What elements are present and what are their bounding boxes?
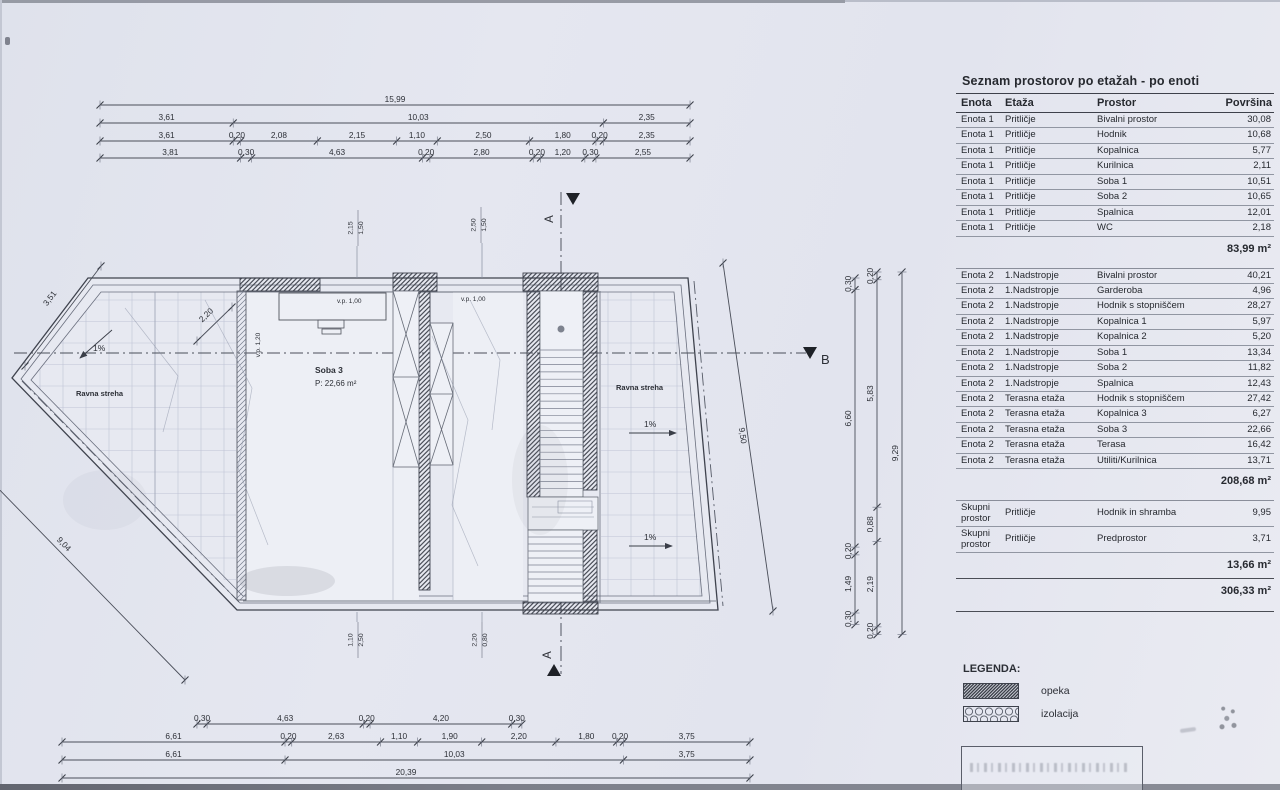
svg-text:2,20: 2,20 [511,731,528,741]
table-row: Enota 1PritličjeBivalni prostor30,08 [956,113,1274,128]
cell-area: 22,66 [1214,423,1274,437]
cell: Pritličje [1000,221,1092,235]
section-subtotal: 13,66 m² [956,553,1274,571]
svg-text:9,29: 9,29 [890,445,900,462]
svg-text:6,60: 6,60 [843,410,853,427]
svg-text:2,35: 2,35 [639,112,656,122]
table-row: Enota 2Terasna etažaTerasa16,42 [956,438,1274,453]
svg-text:0,20: 0,20 [865,267,875,284]
cell: Terasna etaža [1000,392,1092,406]
table-row: Enota 21.NadstropjeKopalnica 15,97 [956,315,1274,330]
cell: Enota 2 [956,392,1000,406]
cell: 1.Nadstropje [1000,284,1092,298]
svg-text:9,04: 9,04 [55,535,74,554]
vp120-label: v.p. 1,20 [255,332,262,357]
cell: Enota 1 [956,190,1000,204]
vp100-right-label: v.p. 1,00 [461,296,486,303]
cell: Utiliti/Kurilnica [1092,454,1214,468]
cell-area: 5,20 [1214,330,1274,344]
slope-right2-label: 1% [644,532,657,542]
svg-text:2,50: 2,50 [358,633,365,646]
cell: Pritličje [1000,206,1092,220]
cell: Kopalnica [1092,144,1214,158]
cell: Kopalnica 1 [1092,315,1214,329]
svg-text:3,51: 3,51 [41,288,59,307]
svg-text:4,20: 4,20 [433,713,450,723]
cell-area: 13,34 [1214,346,1274,360]
section-subtotal: 83,99 m² [956,237,1274,255]
svg-text:20,39: 20,39 [396,767,417,777]
cell: Pritličje [1000,532,1092,546]
cell-area: 12,43 [1214,377,1274,391]
cell: Pritličje [1000,113,1092,127]
total-divider-bottom [956,611,1274,612]
svg-text:2,63: 2,63 [328,731,345,741]
cell-area: 3,71 [1214,532,1274,546]
svg-text:0,30: 0,30 [509,713,526,723]
cell: Enota 2 [956,407,1000,421]
vp100-left-label: v.p. 1,00 [337,298,362,305]
cell-area: 10,68 [1214,128,1274,142]
cell-area: 2,18 [1214,221,1274,235]
cell-area: 2,11 [1214,159,1274,173]
svg-text:1,90: 1,90 [442,731,459,741]
cell: Skupni prostor [956,501,1000,526]
table-row: Enota 21.NadstropjeKopalnica 25,20 [956,330,1274,345]
cell: Soba 2 [1092,190,1214,204]
cell: 1.Nadstropje [1000,299,1092,313]
cell: Enota 2 [956,315,1000,329]
cell: Enota 1 [956,128,1000,142]
svg-text:15,99: 15,99 [385,94,406,104]
faint-handwriting [970,763,1128,772]
svg-text:0,80: 0,80 [482,633,489,646]
svg-text:0,30: 0,30 [582,147,599,157]
svg-text:2,80: 2,80 [473,147,490,157]
cell: Terasa [1092,438,1214,452]
cell: Hodnik in shramba [1092,506,1214,520]
cell: Skupni prostor [956,527,1000,552]
table-row: Enota 21.NadstropjeBivalni prostor40,21 [956,269,1274,284]
cell: Spalnica [1092,377,1214,391]
cell: Pritličje [1000,159,1092,173]
cell: Enota 2 [956,284,1000,298]
section-a-bottom-label: A [542,651,554,659]
cell: Kurilnica [1092,159,1214,173]
table-row: Enota 21.NadstropjeHodnik s stopniščem28… [956,299,1274,314]
table-row: Enota 2Terasna etažaHodnik s stopniščem2… [956,392,1274,407]
svg-text:2,50: 2,50 [475,130,492,140]
table-row: Enota 1PritličjeSoba 210,65 [956,190,1274,205]
svg-text:1,80: 1,80 [555,130,572,140]
cell: 1.Nadstropje [1000,361,1092,375]
cell: Soba 3 [1092,423,1214,437]
svg-text:0,20: 0,20 [612,731,629,741]
section-subtotal: 208,68 m² [956,469,1274,487]
cell: Enota 2 [956,377,1000,391]
svg-text:0,30: 0,30 [843,610,853,627]
svg-text:3,75: 3,75 [679,749,696,759]
col-enota: Enota [956,97,1000,109]
table-row: Skupni prostorPritličjeHodnik in shramba… [956,501,1274,527]
svg-text:1,49: 1,49 [843,575,853,592]
cell: Enota 2 [956,423,1000,437]
cell-area: 5,77 [1214,144,1274,158]
svg-text:2,15: 2,15 [349,130,366,140]
svg-text:1,50: 1,50 [358,221,365,234]
table-row: Enota 2Terasna etažaSoba 322,66 [956,423,1274,438]
table-row: Enota 21.NadstropjeSoba 113,34 [956,346,1274,361]
cell-area: 10,65 [1214,190,1274,204]
svg-text:0,30: 0,30 [238,147,255,157]
section-a-top-label: A [544,215,556,223]
col-prostor: Prostor [1092,97,1214,109]
cell: Enota 1 [956,175,1000,189]
cell: Terasna etaža [1000,407,1092,421]
room-name-label: Soba 3 [315,365,343,375]
cell: Hodnik s stopniščem [1092,392,1214,406]
flat-roof-left-label: Ravna streha [76,389,124,398]
svg-text:1,20: 1,20 [555,147,572,157]
cell: Enota 1 [956,221,1000,235]
svg-text:1,50: 1,50 [481,218,488,231]
svg-text:0,20: 0,20 [359,713,376,723]
table-row: Enota 1PritličjeSoba 110,51 [956,175,1274,190]
brick-hatch-swatch-icon [963,683,1019,699]
cell: Enota 1 [956,159,1000,173]
svg-text:2,19: 2,19 [865,576,875,593]
table-row: Enota 2Terasna etažaKopalnica 36,27 [956,407,1274,422]
cell: Pritličje [1000,175,1092,189]
cell: Spalnica [1092,206,1214,220]
legend-row-opeka: opeka [963,683,1193,699]
svg-text:0,20: 0,20 [418,147,435,157]
table-row: Enota 1PritličjeSpalnica12,01 [956,206,1274,221]
svg-text:10,03: 10,03 [444,749,465,759]
cell-area: 12,01 [1214,206,1274,220]
table-row: Enota 21.NadstropjeSoba 211,82 [956,361,1274,376]
legend-label-izolacija: izolacija [1041,708,1078,720]
svg-text:1,10: 1,10 [409,130,426,140]
svg-text:1,10: 1,10 [348,633,355,646]
svg-text:2,35: 2,35 [639,130,656,140]
col-povrsina: Površina [1214,97,1274,109]
svg-text:0,20: 0,20 [843,543,853,560]
cell: Enota 2 [956,330,1000,344]
cell: 1.Nadstropje [1000,346,1092,360]
ink-smear [1180,727,1196,733]
section-b-label: B [821,352,830,367]
svg-text:0,88: 0,88 [865,516,875,533]
svg-text:4,63: 4,63 [329,147,346,157]
table-body: Enota 1PritličjeBivalni prostor30,08Enot… [956,113,1274,571]
cell: Hodnik [1092,128,1214,142]
cell: Enota 1 [956,206,1000,220]
svg-text:0,30: 0,30 [194,713,211,723]
cell-area: 16,42 [1214,438,1274,452]
cell-area: 9,95 [1214,506,1274,520]
svg-text:3,81: 3,81 [162,147,179,157]
cell-area: 28,27 [1214,299,1274,313]
handwritten-note-box [961,746,1143,790]
cell: Enota 2 [956,438,1000,452]
svg-text:0,20: 0,20 [229,130,246,140]
cell: 1.Nadstropje [1000,269,1092,283]
svg-text:4,63: 4,63 [277,713,294,723]
table-row: Enota 1PritličjeHodnik10,68 [956,128,1274,143]
svg-text:2,08: 2,08 [271,130,288,140]
table-row: Enota 1PritličjeKopalnica5,77 [956,144,1274,159]
table-row: Enota 1PritličjeWC2,18 [956,221,1274,236]
cell: Kopalnica 2 [1092,330,1214,344]
cell: Garderoba [1092,284,1214,298]
svg-text:5,83: 5,83 [865,385,875,402]
cell: Soba 2 [1092,361,1214,375]
cell: Kopalnica 3 [1092,407,1214,421]
svg-text:0,30: 0,30 [843,275,853,292]
plan-geometry: 15,993,6110,032,353,610,202,082,151,102,… [0,94,907,783]
svg-text:0,20: 0,20 [865,622,875,639]
cell-area: 30,08 [1214,113,1274,127]
svg-text:2,15: 2,15 [348,221,355,234]
cell-area: 11,82 [1214,361,1274,375]
table-section: Skupni prostorPritličjeHodnik in shramba… [956,500,1274,571]
cell: Predprostor [1092,532,1214,546]
legend: LEGENDA: opeka izolacija [963,663,1193,729]
cell: Bivalni prostor [1092,113,1214,127]
col-etaza: Etaža [1000,97,1092,109]
svg-text:0,20: 0,20 [592,130,609,140]
cell-area: 13,71 [1214,454,1274,468]
cell-area: 5,97 [1214,315,1274,329]
table-title: Seznam prostorov po etažah - po enoti [956,74,1274,93]
svg-text:2,20: 2,20 [472,633,479,646]
cell: Enota 1 [956,144,1000,158]
cell: Enota 1 [956,113,1000,127]
cell-area: 40,21 [1214,269,1274,283]
svg-text:3,75: 3,75 [679,731,696,741]
slope-right1-label: 1% [644,419,657,429]
room-area-label: P: 22,66 m² [315,379,357,388]
insulation-swatch-icon [963,706,1019,722]
svg-text:0,20: 0,20 [529,147,546,157]
cell-area: 4,96 [1214,284,1274,298]
svg-text:0,20: 0,20 [280,731,297,741]
grand-total: 306,33 m² [956,579,1274,604]
svg-text:1,10: 1,10 [391,731,408,741]
cell: Enota 2 [956,361,1000,375]
cell: Enota 2 [956,299,1000,313]
cell-area: 6,27 [1214,407,1274,421]
cell: Hodnik s stopniščem [1092,299,1214,313]
table-row: Skupni prostorPritličjePredprostor3,71 [956,527,1274,553]
cell: Pritličje [1000,144,1092,158]
cell: Pritličje [1000,190,1092,204]
cell-area: 27,42 [1214,392,1274,406]
cell: 1.Nadstropje [1000,330,1092,344]
table-row: Enota 1PritličjeKurilnica2,11 [956,159,1274,174]
stamp-smudge [1216,703,1240,731]
cell: Terasna etaža [1000,454,1092,468]
legend-title: LEGENDA: [963,663,1193,675]
table-row: Enota 21.NadstropjeGarderoba4,96 [956,284,1274,299]
area-table: Seznam prostorov po etažah - po enoti En… [956,74,1274,612]
cell: Bivalni prostor [1092,269,1214,283]
cell: Terasna etaža [1000,423,1092,437]
cell: Enota 2 [956,454,1000,468]
table-header: Enota Etaža Prostor Površina [956,93,1274,113]
table-section: Enota 21.NadstropjeBivalni prostor40,21E… [956,268,1274,488]
cell: 1.Nadstropje [1000,377,1092,391]
svg-text:10,03: 10,03 [408,112,429,122]
cell: Enota 2 [956,346,1000,360]
svg-text:9,50: 9,50 [737,427,749,445]
table-section: Enota 1PritličjeBivalni prostor30,08Enot… [956,113,1274,255]
cell: Terasna etaža [1000,438,1092,452]
cell: WC [1092,221,1214,235]
flat-roof-right-label: Ravna streha [616,383,664,392]
cell: Pritličje [1000,128,1092,142]
legend-row-izolacija: izolacija [963,706,1193,722]
scanned-floor-plan-page: 15,993,6110,032,353,610,202,082,151,102,… [0,0,1280,790]
cell: Pritličje [1000,506,1092,520]
cell: Soba 1 [1092,175,1214,189]
floor-plan-drawing: 15,993,6110,032,353,610,202,082,151,102,… [0,0,960,790]
svg-text:2,55: 2,55 [635,147,652,157]
cell-area: 10,51 [1214,175,1274,189]
svg-text:3,61: 3,61 [159,112,176,122]
table-row: Enota 2Terasna etažaUtiliti/Kurilnica13,… [956,454,1274,469]
slope-left-label: 1% [93,343,106,353]
svg-text:2,50: 2,50 [471,218,478,231]
table-row: Enota 21.NadstropjeSpalnica12,43 [956,377,1274,392]
svg-text:1,80: 1,80 [578,731,595,741]
cell: Enota 2 [956,269,1000,283]
cell: 1.Nadstropje [1000,315,1092,329]
svg-text:3,61: 3,61 [159,130,176,140]
svg-text:6,61: 6,61 [165,731,182,741]
cell: Soba 1 [1092,346,1214,360]
legend-label-opeka: opeka [1041,685,1070,697]
svg-text:6,61: 6,61 [165,749,182,759]
